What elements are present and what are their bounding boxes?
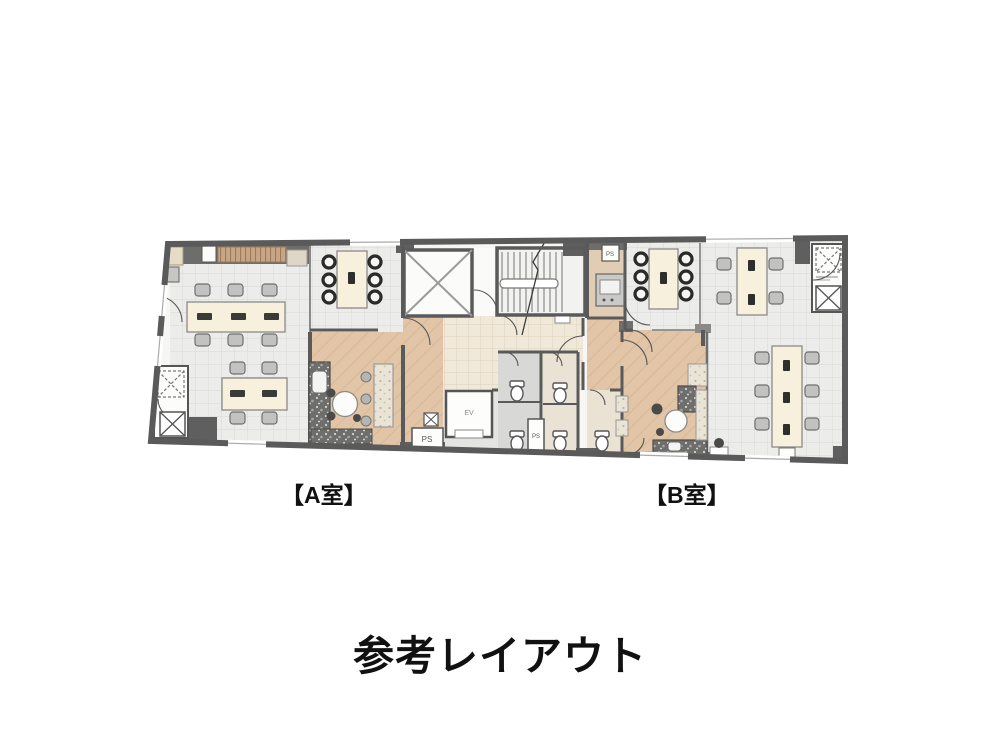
toilet-icon <box>510 381 524 401</box>
pipe-shaft-label: PS <box>606 252 614 258</box>
toilet-icon <box>553 383 567 403</box>
toilet-icon <box>553 431 567 451</box>
pipe-shaft: PS <box>602 245 619 261</box>
elevator-car: EV <box>446 391 492 438</box>
storage <box>616 420 628 436</box>
meeting-table <box>635 249 692 309</box>
wall-niche <box>202 245 216 262</box>
bar-counter <box>361 364 393 427</box>
room-b-label: 【B室】 <box>644 476 730 510</box>
service-shaft-right <box>812 244 845 312</box>
desk <box>187 284 285 346</box>
stair-vestibule-floor <box>472 248 497 316</box>
pipe-shaft-label: PS <box>422 435 433 444</box>
meeting-table <box>323 251 381 308</box>
toilet-icon <box>595 431 609 451</box>
pipe-shaft-label: PS <box>532 434 540 440</box>
page-title: 参考レイアウト <box>0 622 1000 682</box>
page: EV PS PS <box>0 0 1000 750</box>
elevator-shaft <box>404 250 472 316</box>
cabinet <box>287 250 307 266</box>
shelf <box>218 247 286 262</box>
room-a-label: 【A室】 <box>281 476 367 510</box>
utility-kitchenette <box>596 274 624 306</box>
pipe-shaft: PS <box>528 419 544 452</box>
elevator-label: EV <box>464 410 474 417</box>
storage <box>616 396 628 412</box>
toilet-icon <box>510 431 524 451</box>
